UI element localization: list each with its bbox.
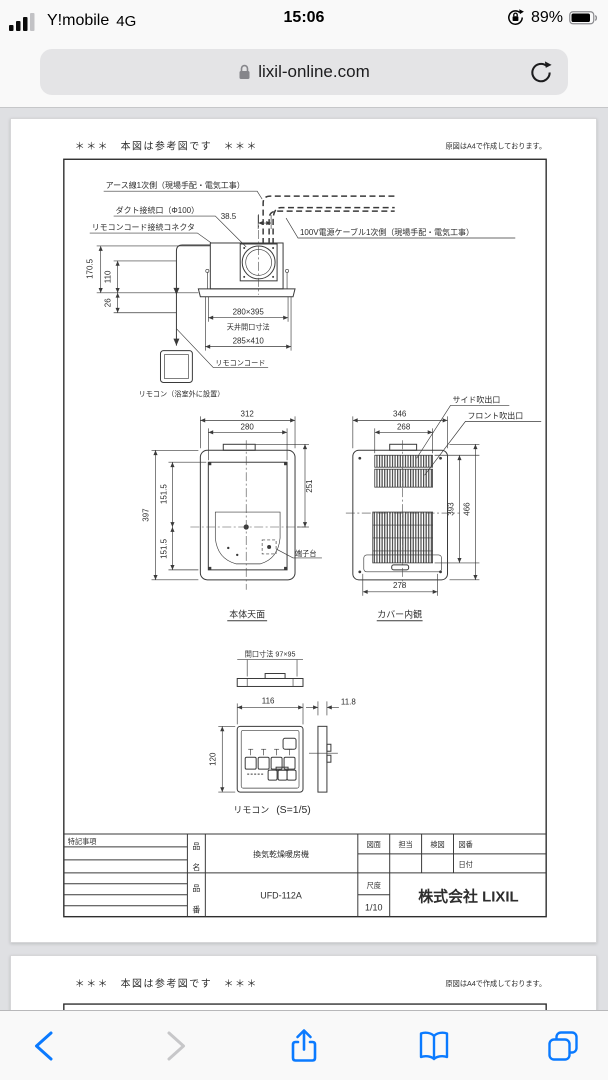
dim-116: 116 [262,696,275,705]
col-check: 検図 [430,840,444,849]
a4-note: 原図はA4で作成しております。 [446,141,547,150]
body-top-view-drawing: 312 280 397 [142,409,322,620]
battery-percent-label: 89% [531,9,563,27]
product-number-label-top: 品 [192,884,200,893]
dim-251: 251 [305,479,314,493]
tabs-icon [541,1024,585,1068]
caption-cover-view: カバー内観 [377,609,422,620]
title-block: 特記事項 品 名 換気乾燥暖房機 品 番 UFD-112A 図面 担当 検図 図… [64,834,546,917]
side-view-drawing: アース線1次側（現場手配・電気工事） ダクト接続口（Φ100） リモコンコード接… [86,180,516,398]
label-earth-wire: アース線1次側（現場手配・電気工事） [106,180,245,190]
url-text: lixil-online.com [258,62,369,82]
label-terminal-block: 端子台 [295,549,316,558]
reload-icon[interactable] [528,59,554,85]
col-date: 日付 [458,860,472,869]
bookmarks-book-icon [412,1024,456,1068]
product-name-label-top: 品 [192,842,200,851]
battery-icon [569,11,598,25]
product-number-value: UFD-112A [260,891,302,901]
col-charge: 担当 [398,840,412,849]
share-button[interactable] [281,1023,327,1069]
dim-151-5-upper: 151.5 [159,484,168,505]
title-notes-header: 特記事項 [68,837,97,846]
dim-120: 120 [208,752,217,766]
dim-110: 110 [104,270,113,283]
dim-280x395: 280×395 [233,308,265,317]
a4-note-2: 原図はA4で作成しております。 [446,979,547,988]
dim-466: 466 [462,502,471,516]
label-remote-placement: リモコン（浴室外に設置） [139,389,225,398]
web-page-content[interactable]: ＊＊＊ 本図は参考図です ＊＊＊ 原図はA4で作成しております。 アース線1次側… [0,108,608,1010]
technical-drawing: ＊＊＊ 本図は参考図です ＊＊＊ 原図はA4で作成しております。 アース線1次側… [11,119,596,942]
label-remote-cord-connector: リモコンコード接続コネクタ [92,222,195,232]
dim-26: 26 [104,298,113,307]
reference-note: ＊＊＊ 本図は参考図です ＊＊＊ [75,139,258,152]
forward-button[interactable] [152,1023,198,1069]
product-name-label-bottom: 名 [192,862,200,872]
label-power-cable: 100V電源ケーブル1次側（現場手配・電気工事） [300,227,474,237]
dim-346: 346 [393,409,407,418]
bookmarks-button[interactable] [411,1023,457,1069]
dim-397: 397 [142,508,151,522]
dim-285x410: 285×410 [233,337,265,346]
label-duct-port: ダクト接続口（Φ100） [116,205,199,215]
drawing-frame [64,159,546,916]
label-ceiling-opening: 天井開口寸法 [227,323,270,332]
browser-address-area: lixil-online.com [0,42,608,108]
product-number-label-bottom: 番 [192,905,200,915]
caption-body-top: 本体天面 [229,609,265,620]
col-number: 図番 [458,840,472,849]
dim-312: 312 [241,409,255,418]
back-chevron-icon [23,1024,67,1068]
caption-remote: リモコン(S=1/5) [233,805,310,816]
scale-value: 1/10 [365,903,382,913]
dim-268: 268 [397,422,411,431]
forward-chevron-icon [153,1024,197,1068]
safari-toolbar [0,1010,608,1080]
scale-label: 尺度 [367,881,381,890]
label-remote-cord: リモコンコード [215,360,265,368]
product-name-value: 換気乾燥暖房機 [253,849,309,859]
address-bar[interactable]: lixil-online.com [40,49,568,95]
label-side-outlet: サイド吹出口 [452,394,500,404]
share-icon [282,1024,326,1068]
dim-393: 393 [446,502,455,516]
dim-38-5: 38.5 [221,212,237,221]
back-button[interactable] [22,1023,68,1069]
drawing-sheet-1: ＊＊＊ 本図は参考図です ＊＊＊ 原図はA4で作成しております。 アース線1次側… [10,118,597,943]
remote-control-drawing: 開口寸法 97×95 116 11.8 [208,650,356,816]
status-bar: Y!mobile 4G 15:06 89% [0,0,608,42]
label-front-outlet: フロント吹出口 [467,410,523,420]
col-drawing: 図面 [367,841,381,849]
dim-remote-opening: 開口寸法 97×95 [245,650,296,659]
tabs-button[interactable] [540,1023,586,1069]
dim-11-8: 11.8 [341,697,356,706]
dim-170-5: 170.5 [86,258,95,279]
iphone-screen: Y!mobile 4G 15:06 89% [0,0,608,1080]
dim-280: 280 [241,422,255,431]
dim-151-5-lower: 151.5 [159,538,168,559]
company-name: 株式会社 LIXIL [418,888,518,906]
reference-note-2: ＊＊＊ 本図は参考図です ＊＊＊ [75,977,258,990]
cover-view-drawing: 346 268 [346,394,541,620]
https-lock-icon [238,64,251,80]
dim-278: 278 [393,581,407,590]
rotation-lock-icon [506,8,525,27]
